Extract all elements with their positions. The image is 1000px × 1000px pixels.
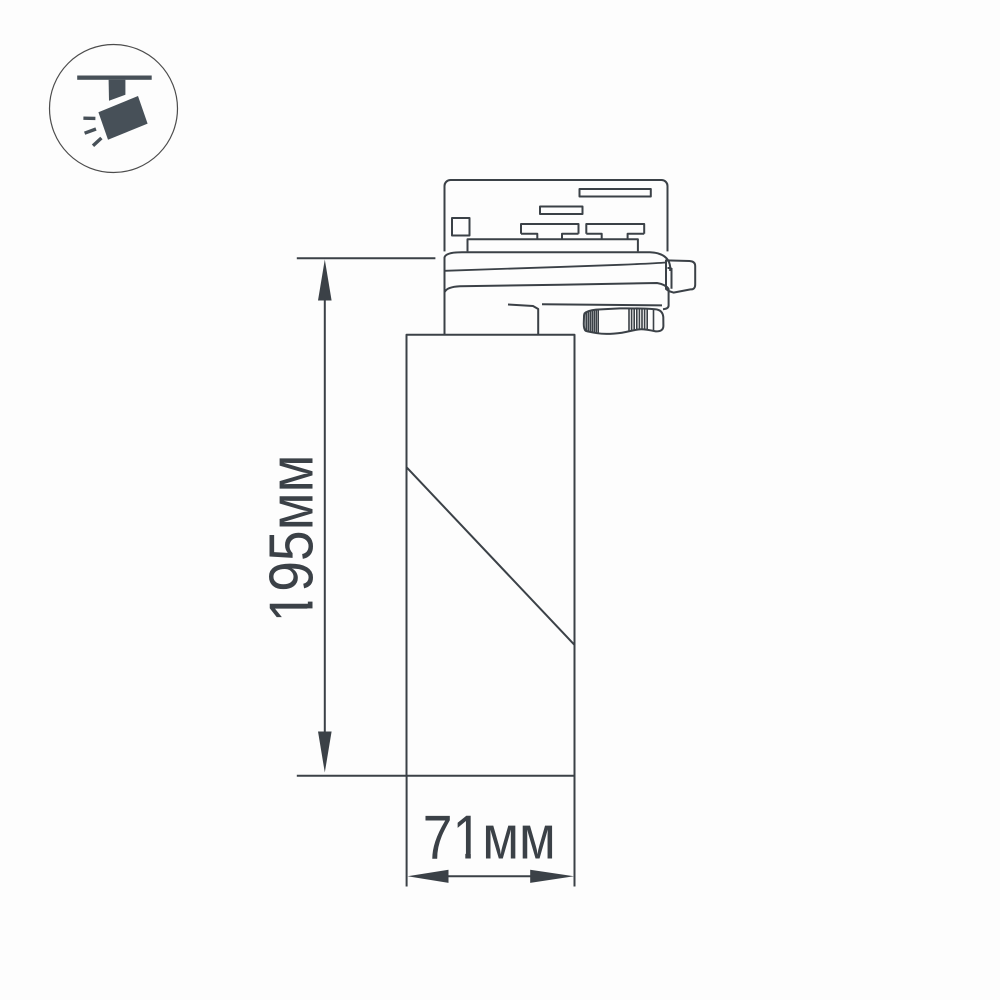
svg-text:71мм: 71мм (423, 803, 556, 873)
svg-text:195мм: 195мм (257, 455, 327, 623)
